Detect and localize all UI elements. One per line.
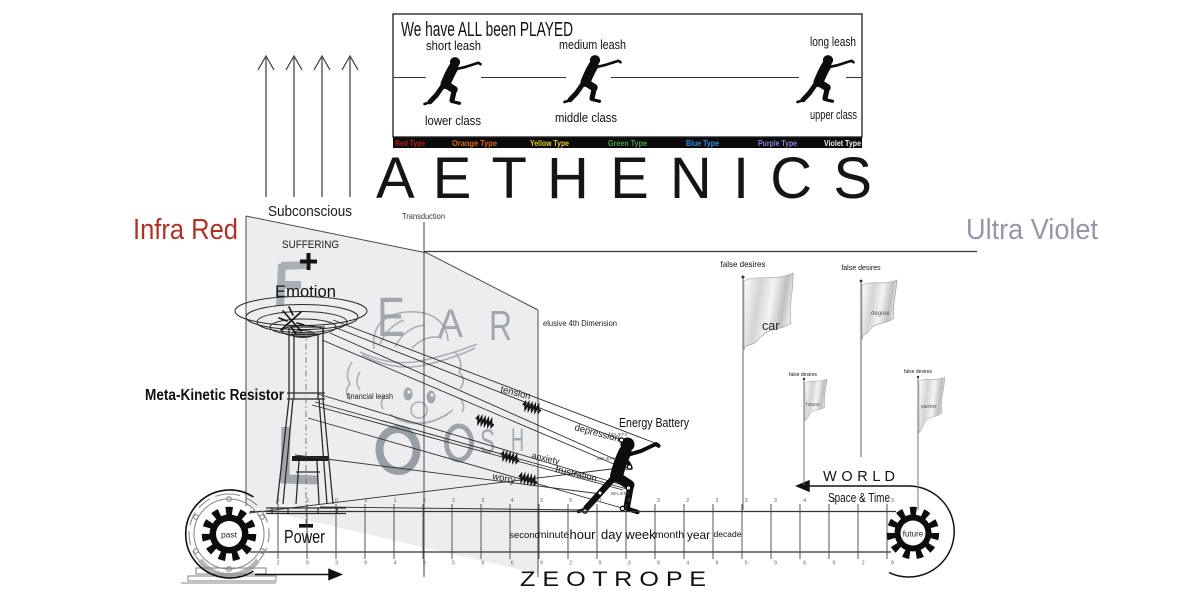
svg-text:long leash: long leash	[810, 34, 856, 49]
svg-text:Infra Red: Infra Red	[133, 214, 238, 246]
svg-text:year: year	[687, 528, 710, 542]
svg-text:past: past	[221, 530, 238, 540]
svg-text:partner: partner	[921, 404, 937, 410]
svg-text:day: day	[601, 527, 622, 542]
svg-text:BELIEFS: BELIEFS	[609, 432, 628, 437]
svg-text:Meta-Kinetic Resistor: Meta-Kinetic Resistor	[145, 387, 284, 404]
svg-text:lower class: lower class	[425, 113, 481, 128]
svg-text:S: S	[480, 423, 495, 461]
svg-text:minute: minute	[538, 529, 570, 541]
svg-text:week: week	[624, 527, 656, 542]
svg-text:middle class: middle class	[555, 110, 617, 125]
svg-text:2939495969293949596929: 2939495969293949596929	[277, 561, 921, 567]
svg-text:W O R L D: W O R L D	[823, 469, 895, 485]
svg-text:BELIEFS: BELIEFS	[611, 491, 630, 496]
svg-text:elusive 4th Dimension: elusive 4th Dimension	[543, 318, 617, 328]
svg-text:financial leash: financial leash	[347, 392, 393, 401]
svg-text:Z E O T R O P E: Z E O T R O P E	[520, 568, 706, 591]
svg-text:car: car	[762, 319, 779, 333]
svg-text:Space & Time: Space & Time	[828, 491, 890, 505]
svg-text:future: future	[903, 530, 924, 539]
svg-text:medium leash: medium leash	[559, 37, 626, 52]
svg-text:false desires: false desires	[841, 265, 881, 272]
svg-text:decade: decade	[714, 529, 742, 539]
svg-text:R: R	[489, 302, 512, 349]
svg-text:false desires: false desires	[721, 260, 766, 269]
svg-text:Ultra Violet: Ultra Violet	[966, 214, 1098, 246]
svg-text:BELIEFS: BELIEFS	[597, 456, 616, 461]
svg-text:Power: Power	[284, 527, 325, 547]
svg-text:upper class: upper class	[810, 107, 857, 122]
svg-text:Energy Battery: Energy Battery	[619, 416, 690, 430]
svg-text:A E T H E N I C S: A E T H E N I C S	[376, 146, 872, 211]
svg-text:second: second	[509, 530, 540, 541]
svg-text:hour: hour	[569, 527, 596, 542]
svg-text:degree: degree	[871, 311, 890, 317]
svg-text:Subconscious: Subconscious	[268, 203, 352, 220]
svg-text:house: house	[806, 402, 820, 408]
svg-text:month: month	[655, 529, 684, 541]
svg-text:Transduction: Transduction	[402, 211, 445, 221]
svg-text:false desires: false desires	[904, 369, 933, 375]
svg-text:Emotion: Emotion	[275, 282, 336, 301]
svg-text:short leash: short leash	[426, 38, 481, 53]
svg-text:false desires: false desires	[789, 372, 818, 378]
svg-text:4303132343536323334353: 4303132343536323334353	[277, 498, 921, 504]
svg-text:SUFFERING: SUFFERING	[282, 239, 339, 251]
